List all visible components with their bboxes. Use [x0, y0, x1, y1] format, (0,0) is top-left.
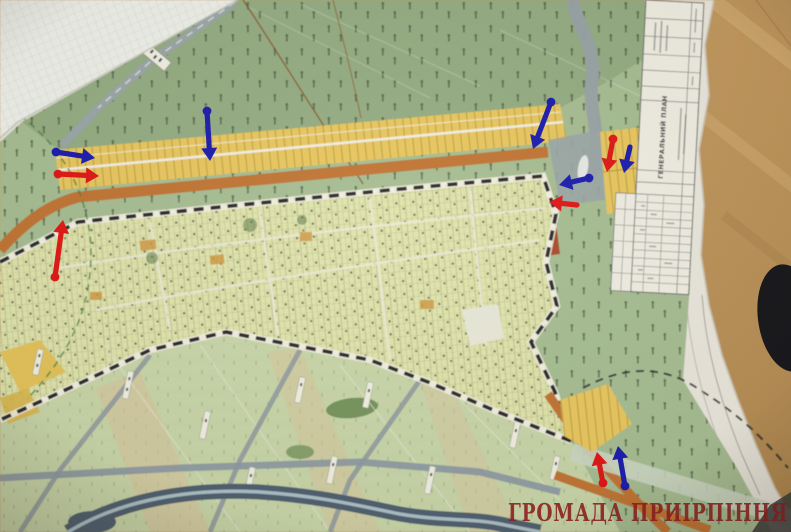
photo-of-general-plan-map: ГЕНЕРАЛЬНИЙ ПЛАН ГРОМАДА ПРИІРПІННЯ	[0, 0, 791, 532]
watermark-text: ГРОМАДА ПРИІРПІННЯ	[508, 498, 788, 527]
